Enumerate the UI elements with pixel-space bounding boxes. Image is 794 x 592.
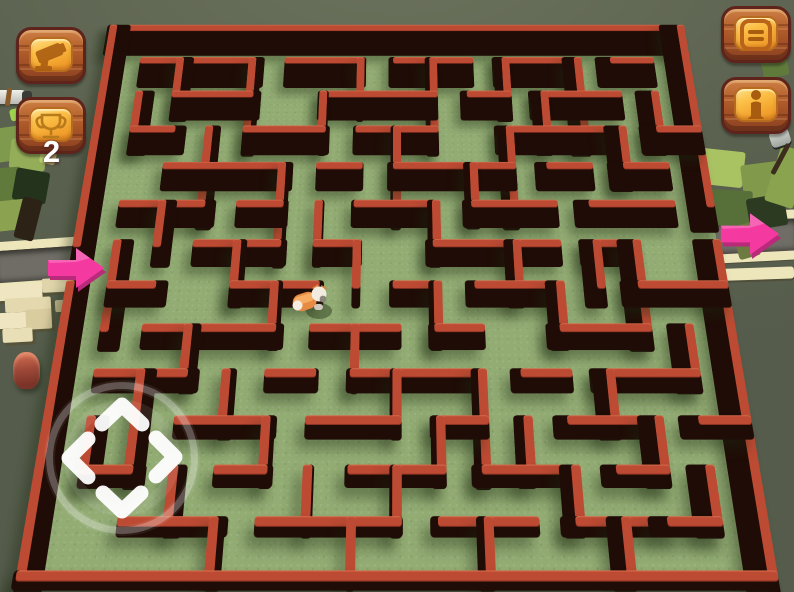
maze-wall-top bbox=[284, 57, 364, 64]
menu-icon bbox=[734, 16, 778, 54]
maze-wall-top bbox=[213, 465, 268, 475]
maze-wall-top bbox=[656, 126, 703, 133]
joystick-down-icon[interactable] bbox=[103, 493, 141, 511]
maze-wall-top bbox=[129, 126, 176, 133]
maze-wall-top bbox=[316, 162, 363, 169]
maze-wall-top bbox=[616, 465, 671, 475]
joystick-left-icon[interactable] bbox=[69, 439, 88, 477]
maze-wall-top bbox=[606, 368, 702, 377]
maze-wall-top bbox=[254, 516, 402, 527]
trophy-icon bbox=[29, 107, 73, 145]
maze-wall-top bbox=[698, 415, 753, 425]
maze-wall-top bbox=[242, 126, 326, 133]
maze-wall-top bbox=[610, 57, 655, 64]
barrel bbox=[13, 352, 40, 389]
axe-prop bbox=[766, 130, 794, 190]
player-character bbox=[288, 280, 336, 326]
maze-wall-top bbox=[433, 239, 562, 247]
maze-wall-top bbox=[319, 91, 438, 98]
camera-view-button[interactable] bbox=[16, 27, 86, 84]
maze-wall-top bbox=[471, 200, 558, 208]
maze-wall-top bbox=[434, 323, 485, 332]
maze-wall-top bbox=[109, 25, 685, 31]
maze-wall-top bbox=[588, 200, 676, 208]
maze-wall-top bbox=[540, 91, 622, 98]
maze-wall-top bbox=[467, 91, 512, 98]
maze-wall-top bbox=[546, 162, 593, 169]
maze-wall-top bbox=[106, 280, 157, 288]
game-screen: 2 bbox=[0, 0, 794, 592]
exit-arrow-icon bbox=[718, 208, 784, 260]
trophy-button[interactable] bbox=[16, 97, 86, 154]
joystick-up-icon[interactable] bbox=[102, 405, 142, 424]
maze-wall-top bbox=[236, 200, 284, 208]
menu-button[interactable] bbox=[721, 6, 791, 63]
maze-wall-top bbox=[305, 415, 402, 425]
maze-wall-top bbox=[352, 239, 362, 289]
maze-wall-top bbox=[623, 162, 671, 169]
maze-wall-top bbox=[520, 368, 572, 377]
maze-wall-top bbox=[140, 57, 257, 64]
info-button[interactable] bbox=[721, 77, 791, 134]
maze-wall-top bbox=[141, 323, 276, 332]
maze-wall-top bbox=[350, 368, 488, 377]
maze-wall-top bbox=[393, 162, 517, 169]
maze-wall-top bbox=[559, 323, 652, 332]
maze-wall-top bbox=[667, 516, 724, 527]
joystick-right-icon[interactable] bbox=[156, 438, 175, 476]
security-camera-icon bbox=[29, 37, 73, 75]
maze-wall-top bbox=[15, 570, 779, 581]
info-icon bbox=[734, 86, 778, 126]
maze-wall-top bbox=[162, 162, 286, 169]
maze-wall-top bbox=[637, 280, 729, 288]
entrance-arrow-icon bbox=[46, 243, 108, 293]
joystick[interactable] bbox=[42, 378, 202, 538]
maze-wall-top bbox=[171, 91, 253, 98]
dog-icon bbox=[288, 280, 336, 326]
maze-wall-top bbox=[264, 368, 316, 377]
